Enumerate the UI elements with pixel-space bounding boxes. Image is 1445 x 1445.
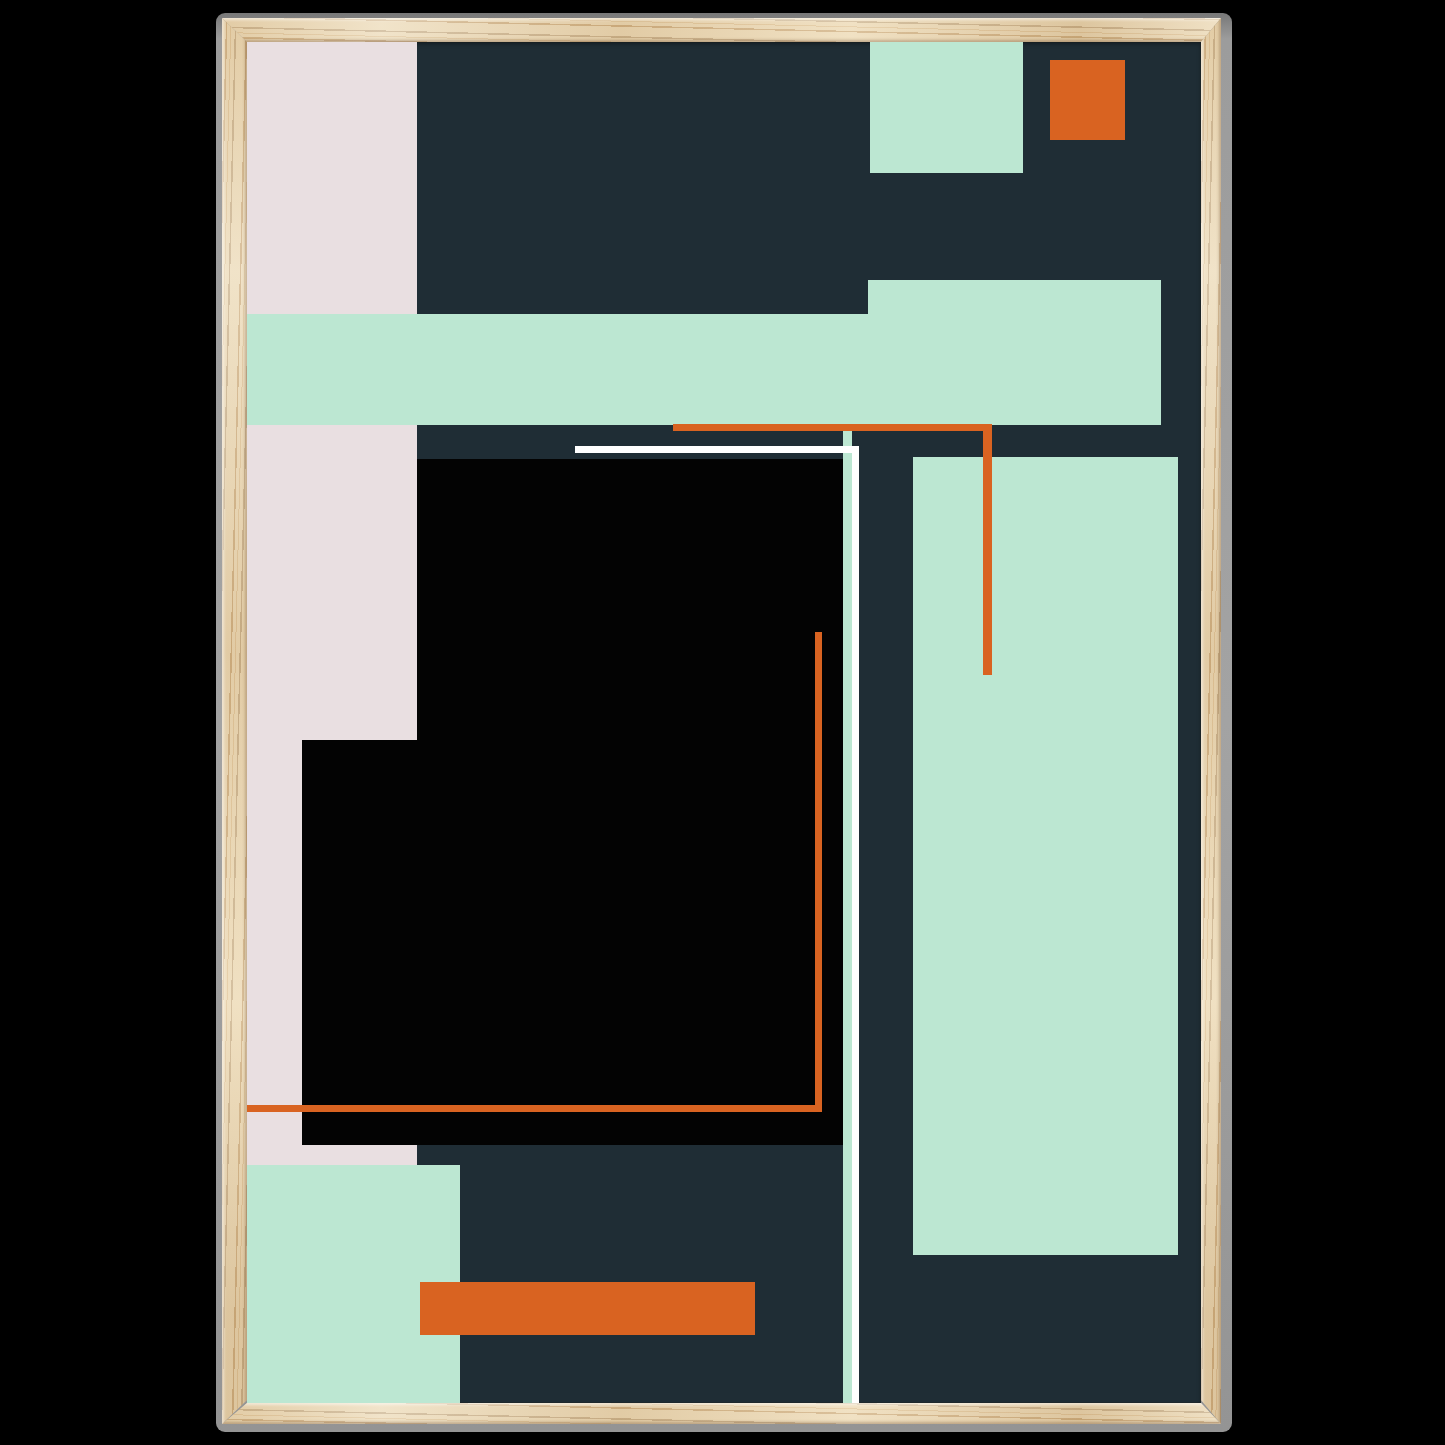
mint-band-right-bump xyxy=(868,280,1161,425)
wood-frame xyxy=(222,18,1221,1424)
orange-square-top-right xyxy=(1050,60,1125,140)
wood-frame-top xyxy=(222,18,1221,42)
framed-poster-mockup xyxy=(0,0,1445,1445)
orange-line-top-vertical xyxy=(983,424,992,675)
wood-frame-right xyxy=(1201,18,1221,1424)
orange-bar-bottom xyxy=(420,1282,755,1335)
wood-frame-left xyxy=(222,18,247,1424)
white-line-vertical xyxy=(852,446,859,1403)
wood-frame-bottom xyxy=(222,1403,1221,1424)
black-block-left-step xyxy=(302,740,417,1145)
white-line-horizontal xyxy=(575,446,859,453)
orange-line-bottom-horizontal xyxy=(247,1105,822,1112)
artwork-canvas xyxy=(247,42,1201,1403)
mint-square-top-right xyxy=(870,42,1023,173)
mint-panel-right xyxy=(913,457,1178,1255)
black-block-main xyxy=(417,459,843,1145)
orange-line-top-horizontal xyxy=(673,424,992,431)
orange-line-inner-vertical xyxy=(815,632,822,1112)
mint-sliver-vertical xyxy=(843,425,852,1403)
